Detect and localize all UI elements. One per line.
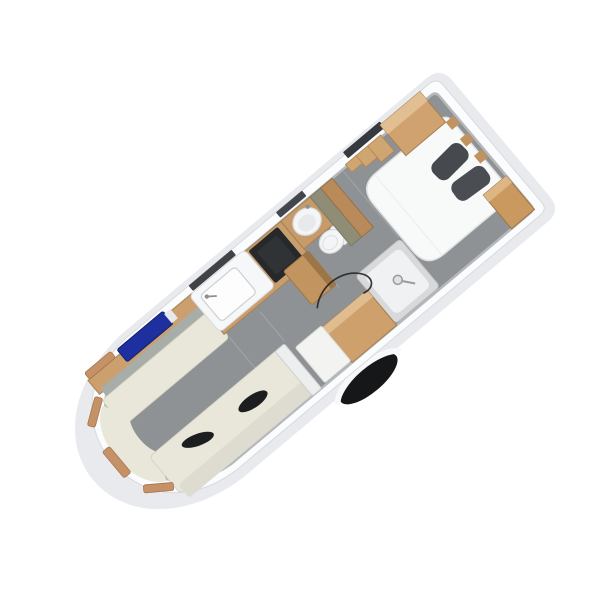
render-canvas — [0, 0, 600, 600]
caravan-3d-floorplan — [0, 0, 600, 600]
